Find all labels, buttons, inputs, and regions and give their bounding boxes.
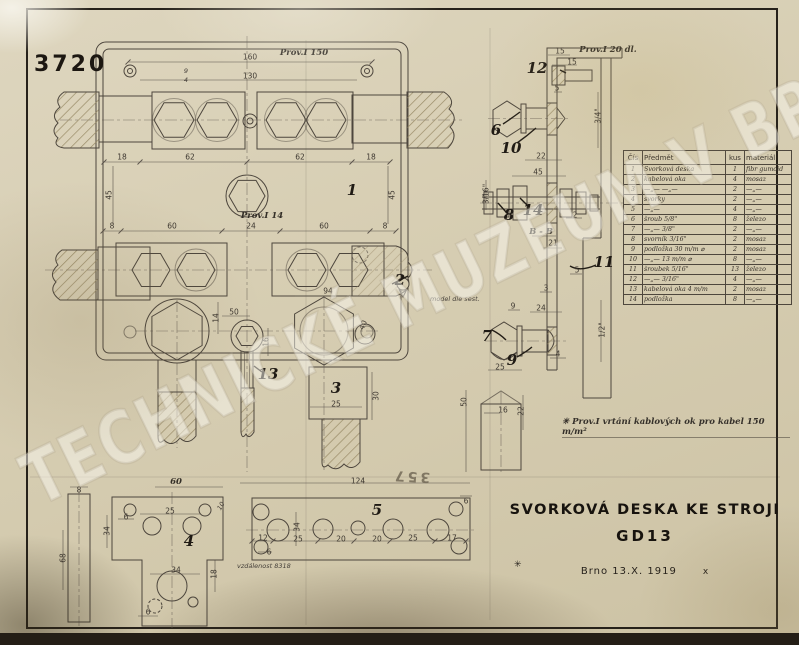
table-cell: 3 [624, 185, 643, 195]
table-cell: 11 [624, 265, 643, 275]
dimension-label: 5 [575, 266, 580, 275]
table-cell: —„— 3/8" [643, 225, 726, 235]
table-cell: 4 [726, 175, 745, 185]
table-cell: —„— [745, 205, 792, 215]
part-label-8: 8 [504, 206, 514, 224]
table-cell: —„— [745, 295, 792, 305]
dimension-label: 9 [184, 67, 188, 75]
title-block: SVORKOVÁ DESKA KE STROJI GD13 ✳ Brno 13.… [500, 502, 790, 577]
dimension-label: 25 [165, 507, 175, 516]
dimension-label: 62 [295, 153, 305, 162]
dimension-label: 3/16" [482, 184, 491, 204]
table-cell: —„— —„— [643, 185, 726, 195]
parts-table-row: 2kabelová oka4mosaz [624, 175, 792, 185]
table-cell: železo [745, 215, 792, 225]
table-cell: svorky [643, 195, 726, 205]
parts-table-row: 4svorky2—„— [624, 195, 792, 205]
parts-table-row: 13kabelová oka 4 m/m2mosaz [624, 285, 792, 295]
footnote-drilling-note: ✳ Prov.I vrtání kablových ok pro kabel 1… [562, 417, 790, 438]
table-cell: 8 [624, 235, 643, 245]
dimension-label: 25 [495, 363, 505, 372]
table-cell: —„— [745, 255, 792, 265]
parts-table-row: 14podložka8—„— [624, 295, 792, 305]
scanned-technical-drawing: { "page": { "watermark": "TECHNICKÉ MUZE… [0, 0, 799, 645]
dimension-label: 15 [555, 47, 565, 56]
table-cell: 2 [624, 175, 643, 185]
table-cell: 4 [624, 195, 643, 205]
dimension-label: 62 [185, 153, 195, 162]
table-cell: —„— [745, 275, 792, 285]
table-cell: 8 [726, 215, 745, 225]
table-cell: 13 [624, 285, 643, 295]
dimension-label: 40 [357, 319, 369, 331]
dimension-label: 5 [555, 84, 560, 93]
dimension-label: 6 [124, 513, 129, 522]
table-cell: 2 [726, 245, 745, 255]
dimension-label: 25 [331, 400, 341, 409]
dimension-label: 21 [548, 239, 558, 248]
date-x-mark: x [703, 567, 709, 577]
dimension-label: 3 [544, 284, 549, 293]
reversed-stamp: 357 [392, 467, 431, 485]
table-cell: 4 [726, 275, 745, 285]
aged-paper-sheet: 160Prov.I 1501309418626218454586024608Pr… [0, 0, 799, 633]
parts-table-row: 8svorník 3/16"2mosaz [624, 235, 792, 245]
dimension-label: 60 [167, 222, 177, 231]
dimension-label: 24 [246, 222, 256, 231]
part-label-13: 13 [258, 365, 279, 383]
part-label-6: 6 [491, 121, 501, 139]
parts-table-row: 6šroub 5/8"8železo [624, 215, 792, 225]
table-cell: kabelová oka [643, 175, 726, 185]
parts-table-row: 5—„—4—„— [624, 205, 792, 215]
table-cell: 2 [726, 225, 745, 235]
dimension-label: 45 [533, 168, 543, 177]
table-cell: 7 [624, 225, 643, 235]
table-header-2: kus [726, 151, 745, 165]
table-cell: 2 [726, 285, 745, 295]
table-cell: fibr gumoid [745, 165, 792, 175]
table-cell: mosaz [745, 235, 792, 245]
part-label-1: 1 [347, 181, 357, 199]
dimension-label: 6 [267, 548, 272, 557]
table-cell: kabelová oka 4 m/m [643, 285, 726, 295]
part-label-3: 3 [331, 379, 341, 397]
table-cell: 4 [726, 205, 745, 215]
table-cell: 10 [624, 255, 643, 265]
table-cell: 13 [726, 265, 745, 275]
dimension-label: 25 [293, 535, 303, 544]
dimension-label: 45 [388, 190, 397, 200]
dimension-label: 68 [59, 553, 68, 563]
dimension-label: 24 [536, 304, 546, 313]
dimension-label: 10 [215, 500, 226, 511]
dimension-label: 6 [464, 497, 469, 506]
part-label-11: 11 [594, 253, 615, 271]
parts-table: ČísPředmětkusmateriál1Svorková deska1fib… [623, 150, 792, 305]
table-cell: šroub 5/8" [643, 215, 726, 225]
dimension-label: 25 [408, 534, 418, 543]
dimension-label: 34 [293, 522, 302, 532]
dimension-label: 22 [517, 406, 526, 416]
dimension-label: 3/4" [594, 108, 603, 124]
dimension-label: 1/2" [598, 322, 607, 338]
table-cell: 6 [624, 215, 643, 225]
part-label-7: 7 [482, 327, 492, 345]
part-label-12: 12 [527, 59, 548, 77]
table-cell: 1 [726, 165, 745, 175]
table-header-1: Předmět [643, 151, 726, 165]
table-cell: 2 [726, 235, 745, 245]
dimension-label: 50 [460, 397, 469, 407]
title-star-mark: ✳ [514, 560, 522, 570]
table-cell: mosaz [745, 175, 792, 185]
part-label-4: 4 [184, 532, 194, 550]
dimension-label: 17 [447, 534, 457, 543]
parts-table-row: 9podložka 30 m/m ⌀2mosaz [624, 245, 792, 255]
dimension-label: 18 [366, 153, 376, 162]
note-prov-150: Prov.I 150 [280, 48, 328, 58]
dimension-label: 18 [210, 569, 219, 579]
parts-table-row: 3—„— —„—2—„— [624, 185, 792, 195]
drawing-title: SVORKOVÁ DESKA KE STROJI [500, 502, 790, 518]
table-cell: —„— [745, 195, 792, 205]
note-prov-20: Prov.I 20 dl. [579, 45, 636, 55]
table-cell: Svorková deska [643, 165, 726, 175]
part-label-14: 14 [523, 201, 544, 219]
note-model: model dle sest. [430, 295, 480, 303]
dimension-label: 30 [372, 391, 381, 401]
date-text: Brno 13.X. 1919 [581, 566, 677, 577]
dimension-label: 45 [105, 190, 114, 200]
table-cell: 5 [624, 205, 643, 215]
table-cell: 12 [624, 275, 643, 285]
table-cell: 2 [726, 185, 745, 195]
dimension-label: 160 [243, 53, 257, 62]
parts-table-row: 7—„— 3/8"2—„— [624, 225, 792, 235]
dimension-label: 15 [567, 58, 577, 67]
table-cell: 2 [726, 195, 745, 205]
table-cell: 8 [726, 255, 745, 265]
part-label-10: 10 [501, 139, 522, 157]
dimension-label: 8 [110, 222, 115, 231]
section-label-b-b: B - B [529, 227, 553, 237]
drawing-subtitle: GD13 [500, 527, 790, 545]
table-cell: podložka [643, 295, 726, 305]
place-and-date: Brno 13.X. 1919x [500, 566, 790, 577]
dimension-label: 9 [511, 302, 516, 311]
dimension-label: 60 [170, 477, 182, 487]
dimension-label: 20 [336, 535, 346, 544]
parts-table-row: 10—„— 13 m/m ⌀8—„— [624, 255, 792, 265]
table-cell: šroubek 5/16" [643, 265, 726, 275]
dimension-label: 50 [229, 308, 239, 317]
dimension-label: 94 [323, 287, 333, 296]
dimension-label: 2 [573, 211, 578, 220]
note-vzdalenost: vzdálenost 8318 [237, 562, 291, 570]
table-cell: —„— [643, 205, 726, 215]
parts-table-row: 1Svorková deska1fibr gumoid [624, 165, 792, 175]
dimension-label: 12 [258, 534, 268, 543]
table-cell: —„— [745, 225, 792, 235]
table-cell: 1 [624, 165, 643, 175]
parts-table-row: 11šroubek 5/16"13železo [624, 265, 792, 275]
table-header-3: materiál [745, 151, 792, 165]
table-header-0: Čís [624, 151, 643, 165]
table-cell: 14 [624, 295, 643, 305]
part-label-2: 2 [395, 271, 405, 289]
table-cell: svorník 3/16" [643, 235, 726, 245]
table-cell: mosaz [745, 285, 792, 295]
dimension-label: 4 [556, 350, 561, 359]
drawing-number: 3720 [34, 52, 107, 77]
table-cell: podložka 30 m/m ⌀ [643, 245, 726, 255]
dimension-label: 18 [117, 153, 127, 162]
table-cell: —„— 13 m/m ⌀ [643, 255, 726, 265]
table-cell: 8 [726, 295, 745, 305]
dimension-label: 130 [243, 72, 257, 81]
dimension-label: 8 [383, 222, 388, 231]
dimension-label: 16 [262, 337, 271, 347]
parts-table-row: 12—„— 3/16"4—„— [624, 275, 792, 285]
part-label-9: 9 [507, 351, 517, 369]
dimension-label: 6 [146, 608, 151, 617]
dimension-label: 22 [536, 152, 546, 161]
dimension-label: 14 [212, 313, 221, 323]
note-prov-14: Prov.I 14 [241, 211, 283, 221]
dimension-label: 4 [184, 76, 188, 84]
table-cell: —„— [745, 185, 792, 195]
dimension-label: 124 [351, 477, 365, 486]
dimension-label: 60 [319, 222, 329, 231]
table-cell: —„— 3/16" [643, 275, 726, 285]
table-cell: železo [745, 265, 792, 275]
part-label-5: 5 [372, 501, 382, 519]
dimension-label: 20 [372, 535, 382, 544]
table-cell: mosaz [745, 245, 792, 255]
dimension-label: 16 [498, 406, 508, 415]
dimension-label: 34 [103, 526, 112, 536]
dimension-label: 8 [77, 486, 82, 495]
dimension-label: 34 [171, 566, 181, 575]
table-cell: 9 [624, 245, 643, 255]
